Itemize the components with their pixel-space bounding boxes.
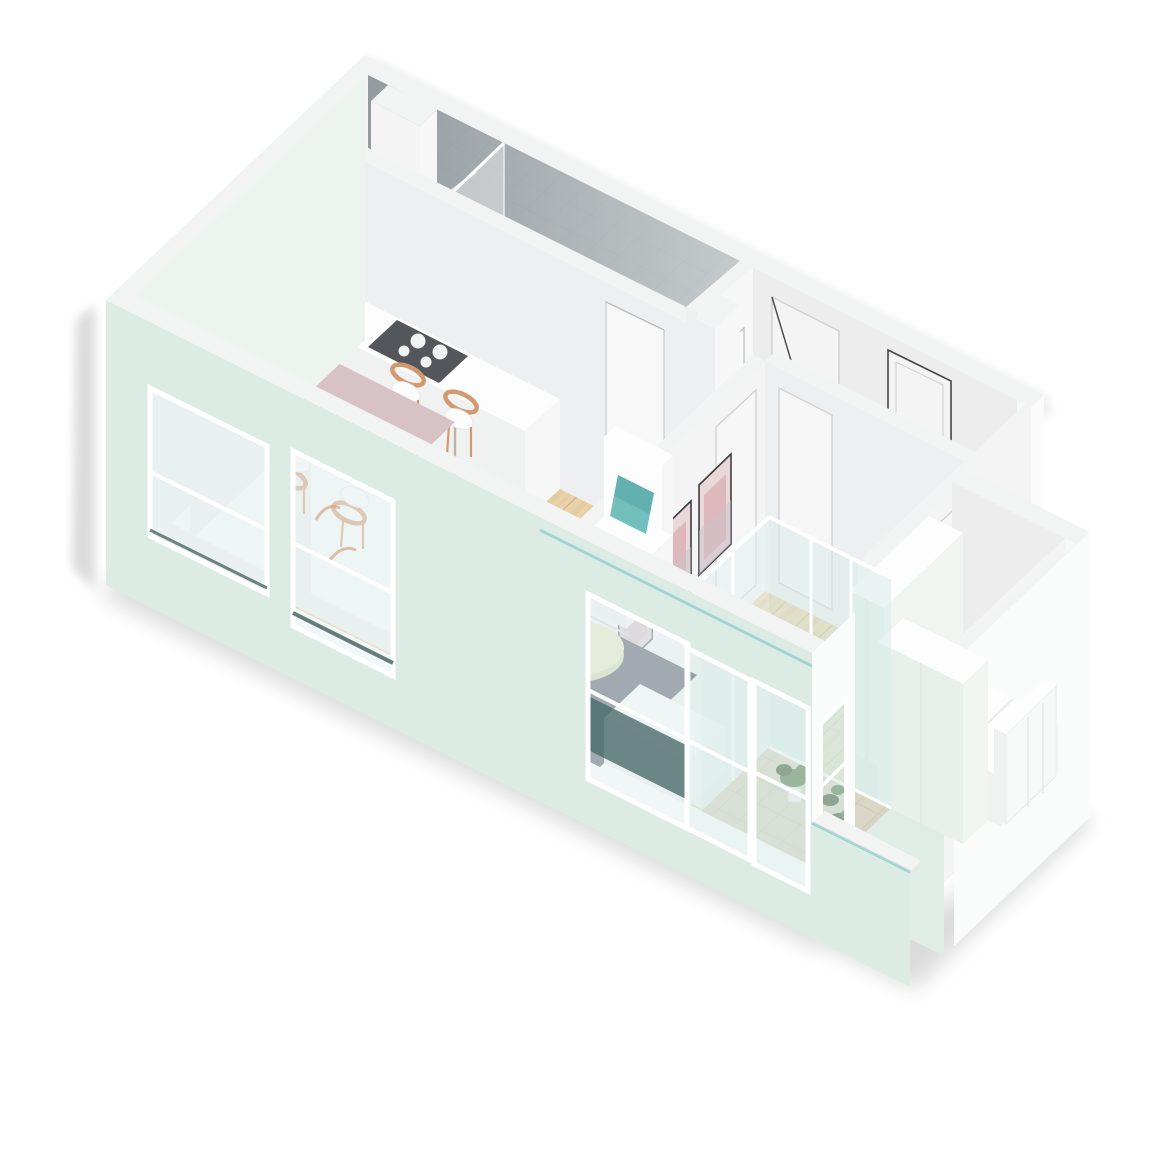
mint-wardrobe (878, 618, 988, 844)
window-terrace-1 (687, 648, 750, 860)
mint-wardrobe-side (963, 660, 988, 844)
floorplan-canvas (0, 0, 1170, 1157)
floorplan-stage (0, 0, 1170, 1157)
window-terrace-2 (754, 681, 808, 891)
